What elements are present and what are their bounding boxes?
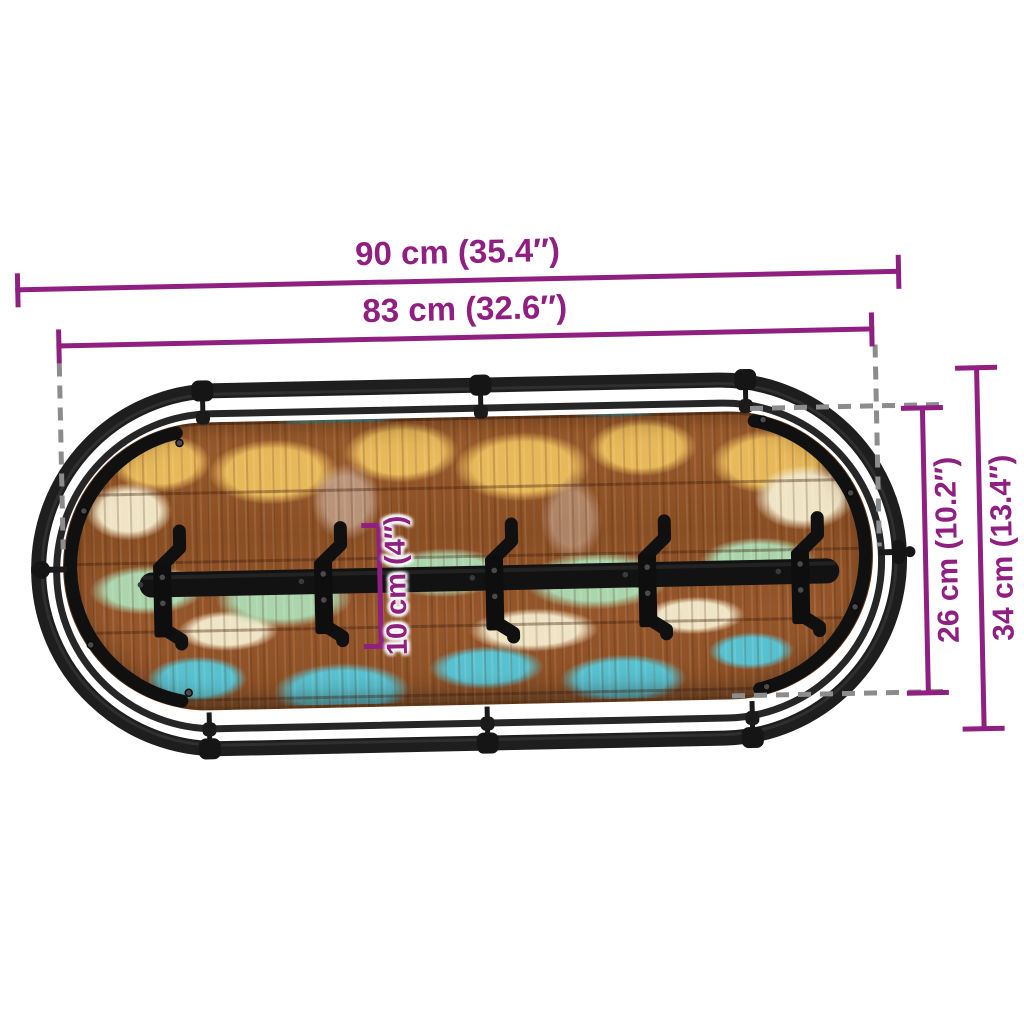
- dimension-overall-height-label: 34 cm (13.4″): [986, 454, 1020, 641]
- side-connector-left: [31, 560, 67, 579]
- dimension-cap: [963, 726, 1005, 732]
- dimension-hook-height-label: 10 cm (4″): [381, 515, 413, 655]
- dimension-hook-height: 10 cm (4″): [361, 522, 398, 649]
- diagram-scene: 90 cm (35.4″) 83 cm (32.6″) 26 cm (10.2″…: [0, 0, 1024, 1024]
- dimension-panel-height: 26 cm (10.2″): [901, 405, 949, 696]
- dimension-cap: [15, 273, 21, 307]
- dimension-overall-height: 34 cm (13.4″): [955, 365, 1005, 732]
- dimension-line: [974, 367, 987, 729]
- band-screws: [79, 414, 861, 704]
- dimension-cap: [56, 329, 62, 363]
- metal-frame-and-hooks: [0, 0, 1024, 1024]
- dimension-cap: [901, 405, 943, 411]
- dimension-line: [919, 407, 930, 693]
- dimension-cap: [955, 365, 997, 371]
- dimension-cap: [896, 254, 902, 288]
- product-dimension-diagram: 90 cm (35.4″) 83 cm (32.6″) 26 cm (10.2″…: [0, 0, 1024, 1024]
- dimension-cap: [869, 312, 875, 346]
- dimension-cap: [907, 690, 949, 696]
